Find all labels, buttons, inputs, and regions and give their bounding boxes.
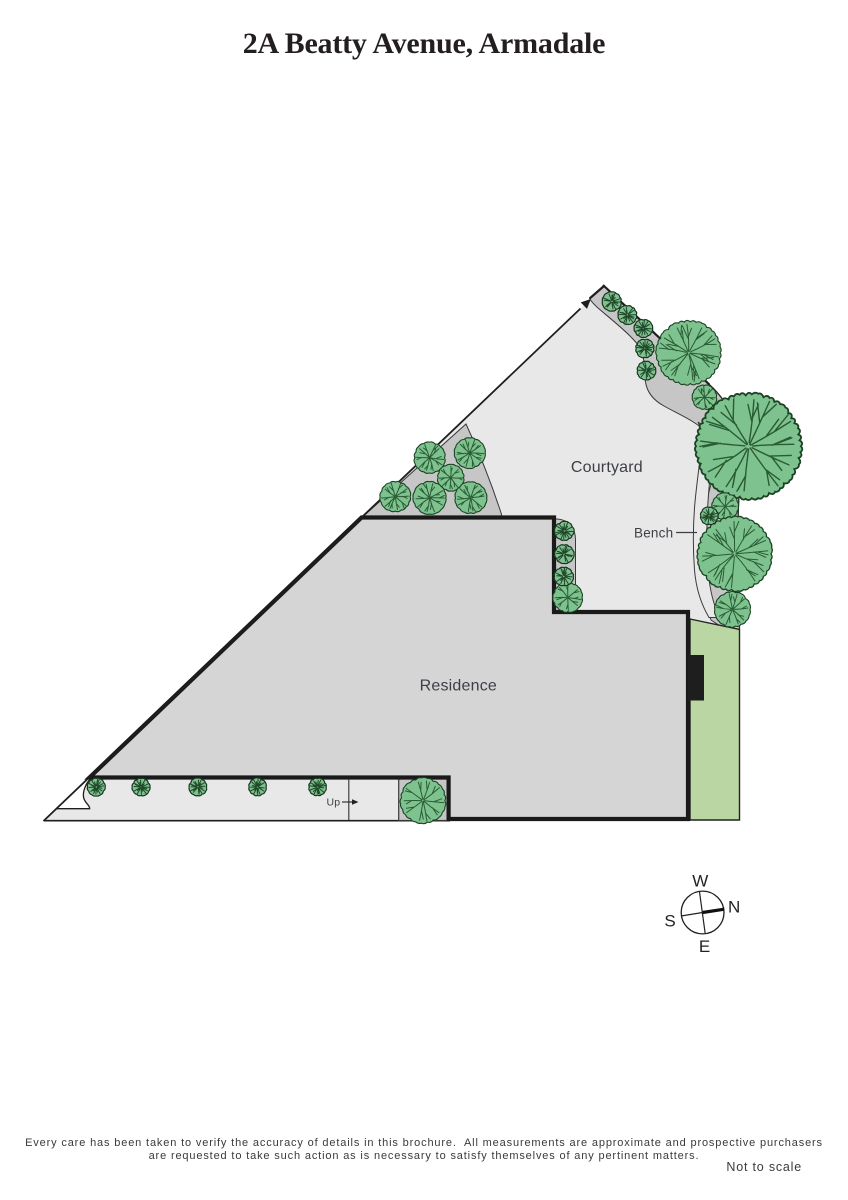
svg-text:W: W [692,872,708,891]
svg-text:E: E [699,937,710,956]
svg-text:Residence: Residence [420,678,497,695]
svg-text:N: N [728,897,740,916]
svg-text:S: S [664,911,675,930]
svg-text:Bench: Bench [634,526,673,541]
svg-text:Up: Up [327,797,341,809]
svg-text:Courtyard: Courtyard [571,459,643,476]
